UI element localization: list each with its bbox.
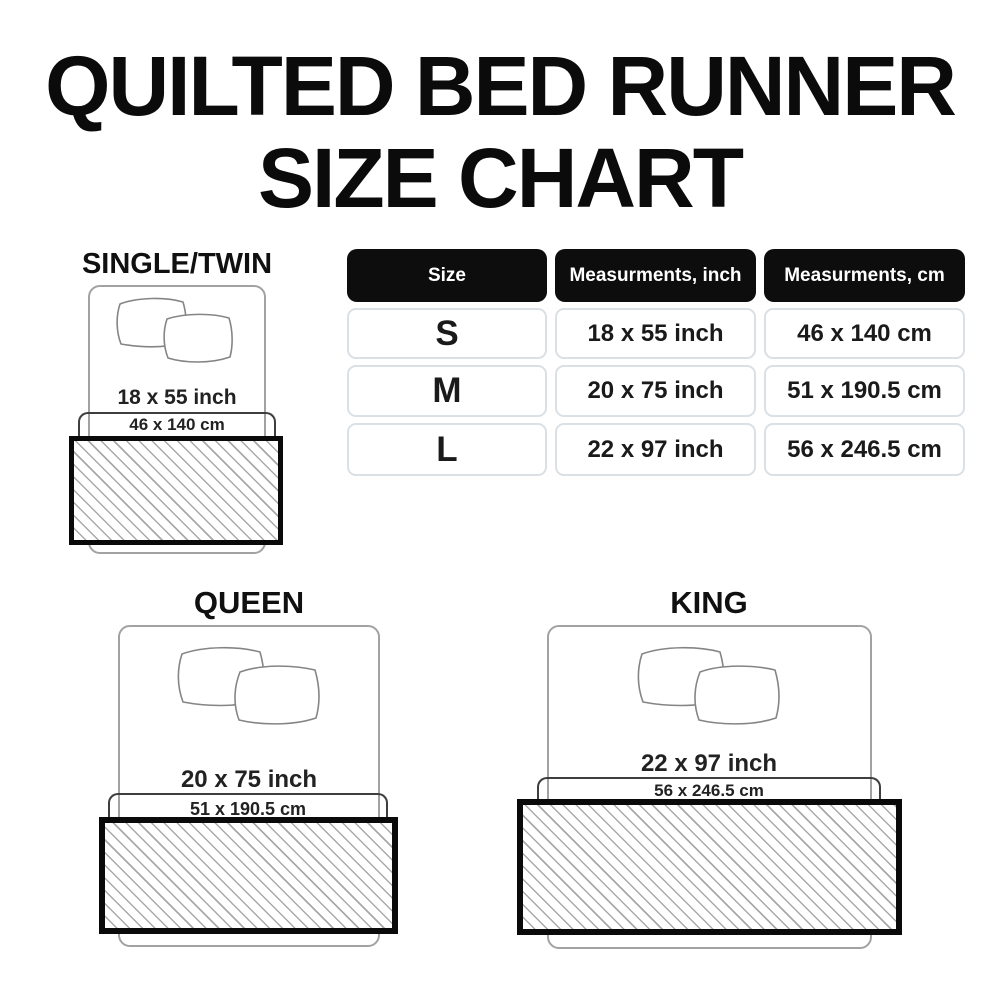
table-cell-inch-m: 20 x 75 inch [555,365,756,417]
king-cm-measurement: 56 x 246.5 cm [537,781,881,801]
size-chart-poster: QUILTED BED RUNNER SIZE CHART SINGLE/TWI… [0,0,1000,1000]
table-cell-inch-l: 22 x 97 inch [555,423,756,476]
table-cell-cm-s: 46 x 140 cm [764,308,965,359]
pillows-icon [174,642,322,728]
pillows-icon [113,294,235,365]
king-inch-measurement: 22 x 97 inch [609,750,809,778]
king-label: KING [609,585,809,621]
king-runner-swatch [517,799,902,935]
queen-inch-measurement: 20 x 75 inch [149,766,349,794]
table-cell-cm-l: 56 x 246.5 cm [764,423,965,476]
pillow-front-icon [164,314,232,362]
table-cell-size-s: S [347,308,547,359]
page-title-line2: SIZE CHART [0,132,1000,224]
table-cell-cm-m: 51 x 190.5 cm [764,365,965,417]
page-title-line1: QUILTED BED RUNNER [0,40,1000,132]
page-title: QUILTED BED RUNNER SIZE CHART [0,40,1000,224]
size-table: Size Measurments, inch Measurments, cm S… [347,249,965,476]
queen-runner-swatch [99,817,398,934]
table-cell-size-l: L [347,423,547,476]
table-header-size: Size [347,249,547,302]
pillow-front-icon [235,666,319,724]
pillow-front-icon [695,666,779,724]
table-cell-inch-s: 18 x 55 inch [555,308,756,359]
single-runner-swatch [69,436,283,545]
single-inch-measurement: 18 x 55 inch [88,386,266,410]
queen-label: QUEEN [149,585,349,621]
table-header-cm: Measurments, cm [764,249,965,302]
pillows-icon [634,642,782,728]
table-header-inch: Measurments, inch [555,249,756,302]
single-twin-label: SINGLE/TWIN [68,248,286,281]
table-cell-size-m: M [347,365,547,417]
single-cm-measurement: 46 x 140 cm [78,415,276,435]
